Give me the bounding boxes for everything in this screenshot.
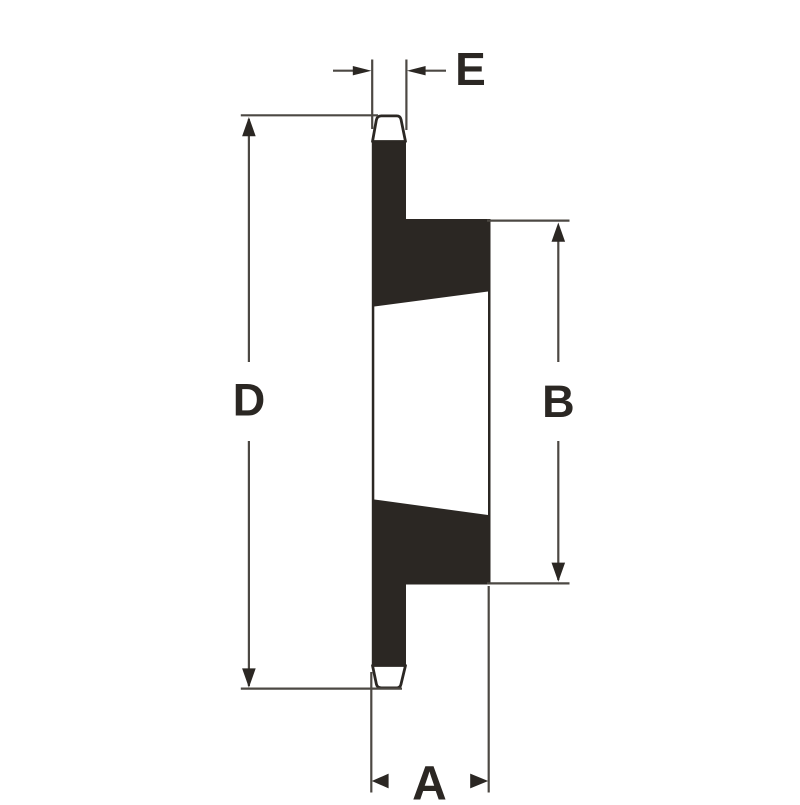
svg-text:B: B [542,376,575,427]
svg-text:E: E [455,43,486,95]
svg-text:A: A [412,758,447,801]
svg-text:D: D [233,375,266,426]
